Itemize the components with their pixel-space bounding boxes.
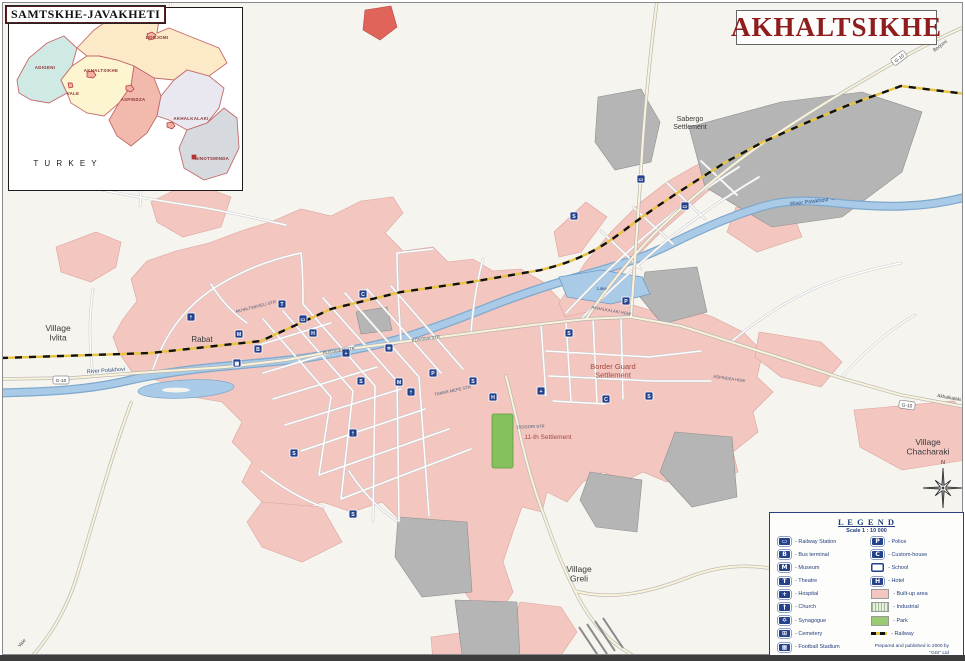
bus-terminal-icon xyxy=(778,550,791,559)
bus-terminal-icon: B xyxy=(254,345,262,353)
svg-text:✡: ✡ xyxy=(387,346,391,352)
legend-columns: Railway StationBus terminalMuseumTheatre… xyxy=(770,534,963,661)
industrial-icon xyxy=(871,602,889,612)
svg-text:†: † xyxy=(190,315,193,321)
svg-text:▭: ▭ xyxy=(639,177,644,183)
museum-icon: M xyxy=(235,330,243,338)
inset-district-label: AKHALTSIKHE xyxy=(84,68,118,73)
inset-district-label: ADIGENI xyxy=(35,65,55,70)
inset-district-label: ASPINDZA xyxy=(121,97,146,102)
school-icon: S xyxy=(357,377,365,385)
svg-text:+: + xyxy=(539,389,542,395)
legend-item-museum: Museum xyxy=(778,563,871,572)
svg-text:†: † xyxy=(410,390,413,396)
place-label: Border GuardSettlement xyxy=(590,362,635,380)
legend-item-built-up: Built-up area xyxy=(871,590,957,599)
church-icon: † xyxy=(407,388,415,396)
legend-item-label: Railway Station xyxy=(795,539,836,545)
road-shield: G-10 xyxy=(899,400,916,410)
svg-text:S: S xyxy=(351,512,355,518)
legend-item-bus-terminal: Bus terminal xyxy=(778,550,871,559)
synagogue-icon: ✡ xyxy=(385,344,393,352)
legend-item-label: Industrial xyxy=(893,604,919,610)
church-icon: † xyxy=(349,429,357,437)
place-label: VillageGreli xyxy=(566,564,592,584)
place-label: SabergoSettlement xyxy=(673,116,707,131)
svg-text:▭: ▭ xyxy=(301,317,306,323)
svg-text:▭: ▭ xyxy=(683,204,688,210)
stadium-icon xyxy=(778,643,791,652)
svg-text:S: S xyxy=(292,451,296,457)
museum-icon: M xyxy=(395,378,403,386)
destination-label: Vale xyxy=(17,638,28,649)
svg-text:M: M xyxy=(237,332,241,338)
svg-text:S: S xyxy=(359,379,363,385)
road-shield: G-10 xyxy=(890,50,908,66)
museum-icon xyxy=(778,563,791,572)
compass-rose: N xyxy=(923,460,962,508)
legend-box: L E G E N D Scale 1 : 10 000 Railway Sta… xyxy=(769,512,964,659)
map-frame: N CM†T▭H+S✡M†P†SSHS+S▭▭PCSSB▦ RUSTAVELI … xyxy=(2,2,963,655)
legend-item-railway-station: Railway Station xyxy=(778,537,871,546)
synagogue-icon xyxy=(778,616,791,625)
legend-header: L E G E N D Scale 1 : 10 000 xyxy=(770,517,963,534)
hotel-icon: H xyxy=(489,393,497,401)
legend-item-label: Hospital xyxy=(795,591,818,597)
custom-house-icon xyxy=(871,550,884,559)
legend-item-stadium: Football Stadium xyxy=(778,643,871,652)
school-icon: S xyxy=(349,510,357,518)
railway-icon xyxy=(871,632,887,635)
inset-district-label: BORJOMI xyxy=(146,35,169,40)
legend-item-school: School xyxy=(871,563,957,572)
police-icon: P xyxy=(622,297,630,305)
legend-item-label: Church xyxy=(795,604,816,610)
place-label: Rabat xyxy=(191,335,213,344)
legend-item-railway: Railway xyxy=(871,629,957,638)
theatre-icon xyxy=(778,577,791,586)
school-icon: S xyxy=(290,449,298,457)
legend-title: L E G E N D xyxy=(770,517,963,527)
legend-item-label: Custom-house xyxy=(888,552,927,558)
legend-item-church: Church xyxy=(778,603,871,612)
legend-item-industrial: Industrial xyxy=(871,603,957,612)
legend-item-label: Bus terminal xyxy=(795,552,829,558)
legend-item-label: Museum xyxy=(795,565,819,571)
legend-item-label: School xyxy=(888,565,908,571)
school-icon: S xyxy=(565,329,573,337)
police-icon xyxy=(871,537,884,546)
page-bottom-edge xyxy=(0,655,965,661)
church-icon xyxy=(778,603,791,612)
hatch-marks xyxy=(579,618,623,654)
region-inset-svg: ADIGENIBORJOMIAKHALTSIKHEVALEASPINDZAAKH… xyxy=(9,8,240,187)
custom-house-icon: C xyxy=(602,395,610,403)
legend-item-label: Cemetery xyxy=(795,631,822,637)
police-icon: P xyxy=(429,369,437,377)
railway-station-icon: ▭ xyxy=(637,175,645,183)
hotel-icon xyxy=(871,577,884,586)
railway-station-icon xyxy=(778,537,791,546)
svg-text:S: S xyxy=(471,379,475,385)
school-icon: S xyxy=(570,212,578,220)
legend-item-hotel: Hotel xyxy=(871,577,957,586)
inset-district-label: AKHALKALAKI xyxy=(173,116,208,121)
legend-item-label: Football Stadium xyxy=(795,644,840,650)
legend-item-cemetery: Cemetery xyxy=(778,629,871,638)
stadium-icon: ▦ xyxy=(233,359,241,367)
legend-item-label: Synagogue xyxy=(795,618,826,624)
turkey-label: T U R K E Y xyxy=(33,159,98,168)
school-icon xyxy=(871,563,884,572)
cemetery-icon xyxy=(778,629,791,638)
legend-left-column: Railway StationBus terminalMuseumTheatre… xyxy=(778,537,871,661)
legend-item-label: Park xyxy=(893,618,908,624)
hospital-icon xyxy=(778,590,791,599)
road-shield: G-10 xyxy=(53,376,69,384)
svg-text:P: P xyxy=(624,299,628,305)
page-title: AKHALTSIKHE xyxy=(736,10,937,45)
place-label: Lake xyxy=(597,286,607,291)
place-label: 11-th Settlement xyxy=(524,434,571,441)
hospital-icon: + xyxy=(537,387,545,395)
legend-right-column: PoliceCustom-houseSchoolHotelBuilt-up ar… xyxy=(871,537,957,661)
region-inset-map: ADIGENIBORJOMIAKHALTSIKHEVALEASPINDZAAKH… xyxy=(8,7,243,191)
svg-text:P: P xyxy=(431,371,435,377)
legend-item-label: Railway xyxy=(891,631,914,637)
svg-text:H: H xyxy=(491,395,495,401)
inset-district-label: VALE xyxy=(67,91,80,96)
cinema-icon: C xyxy=(359,290,367,298)
school-icon: S xyxy=(469,377,477,385)
theatre-icon: T xyxy=(278,300,286,308)
railway-station-icon: ▭ xyxy=(299,315,307,323)
legend-item-theatre: Theatre xyxy=(778,577,871,586)
svg-text:S: S xyxy=(647,394,651,400)
legend-item-label: Built-up area xyxy=(893,591,928,597)
svg-text:H: H xyxy=(311,331,315,337)
legend-item-hospital: Hospital xyxy=(778,590,871,599)
park-area xyxy=(492,414,513,468)
akhaltsikhe-map-page: N CM†T▭H+S✡M†P†SSHS+S▭▭PCSSB▦ RUSTAVELI … xyxy=(0,0,965,661)
svg-text:▦: ▦ xyxy=(235,361,240,367)
railway-station-icon: ▭ xyxy=(681,202,689,210)
svg-text:S: S xyxy=(567,331,571,337)
legend-item-synagogue: Synagogue xyxy=(778,616,871,625)
svg-text:B: B xyxy=(256,347,260,353)
hotel-icon: H xyxy=(309,329,317,337)
place-label: VillageIvlita xyxy=(45,323,71,343)
legend-item-park: Park xyxy=(871,616,957,625)
inset-districts xyxy=(17,12,239,180)
built-up-icon xyxy=(871,589,889,599)
legend-item-label: Police xyxy=(888,539,906,545)
legend-item-police: Police xyxy=(871,537,957,546)
inset-title: SAMTSKHE-JAVAKHETI xyxy=(6,6,165,23)
school-icon: S xyxy=(645,392,653,400)
church-icon: † xyxy=(187,313,195,321)
svg-text:G-10: G-10 xyxy=(56,378,67,384)
svg-text:M: M xyxy=(397,380,401,386)
svg-text:C: C xyxy=(604,397,608,403)
legend-item-label: Hotel xyxy=(888,578,904,584)
svg-text:†: † xyxy=(352,431,355,437)
legend-item-custom-house: Custom-house xyxy=(871,550,957,559)
street-label: DIDGORI STR xyxy=(517,424,545,430)
inset-district-label: NINOTSMINDA xyxy=(195,156,230,161)
compass-n-label: N xyxy=(941,460,945,466)
svg-text:S: S xyxy=(572,214,576,220)
svg-text:C: C xyxy=(361,292,365,298)
legend-item-label: Theatre xyxy=(795,578,817,584)
park-icon xyxy=(871,616,889,626)
